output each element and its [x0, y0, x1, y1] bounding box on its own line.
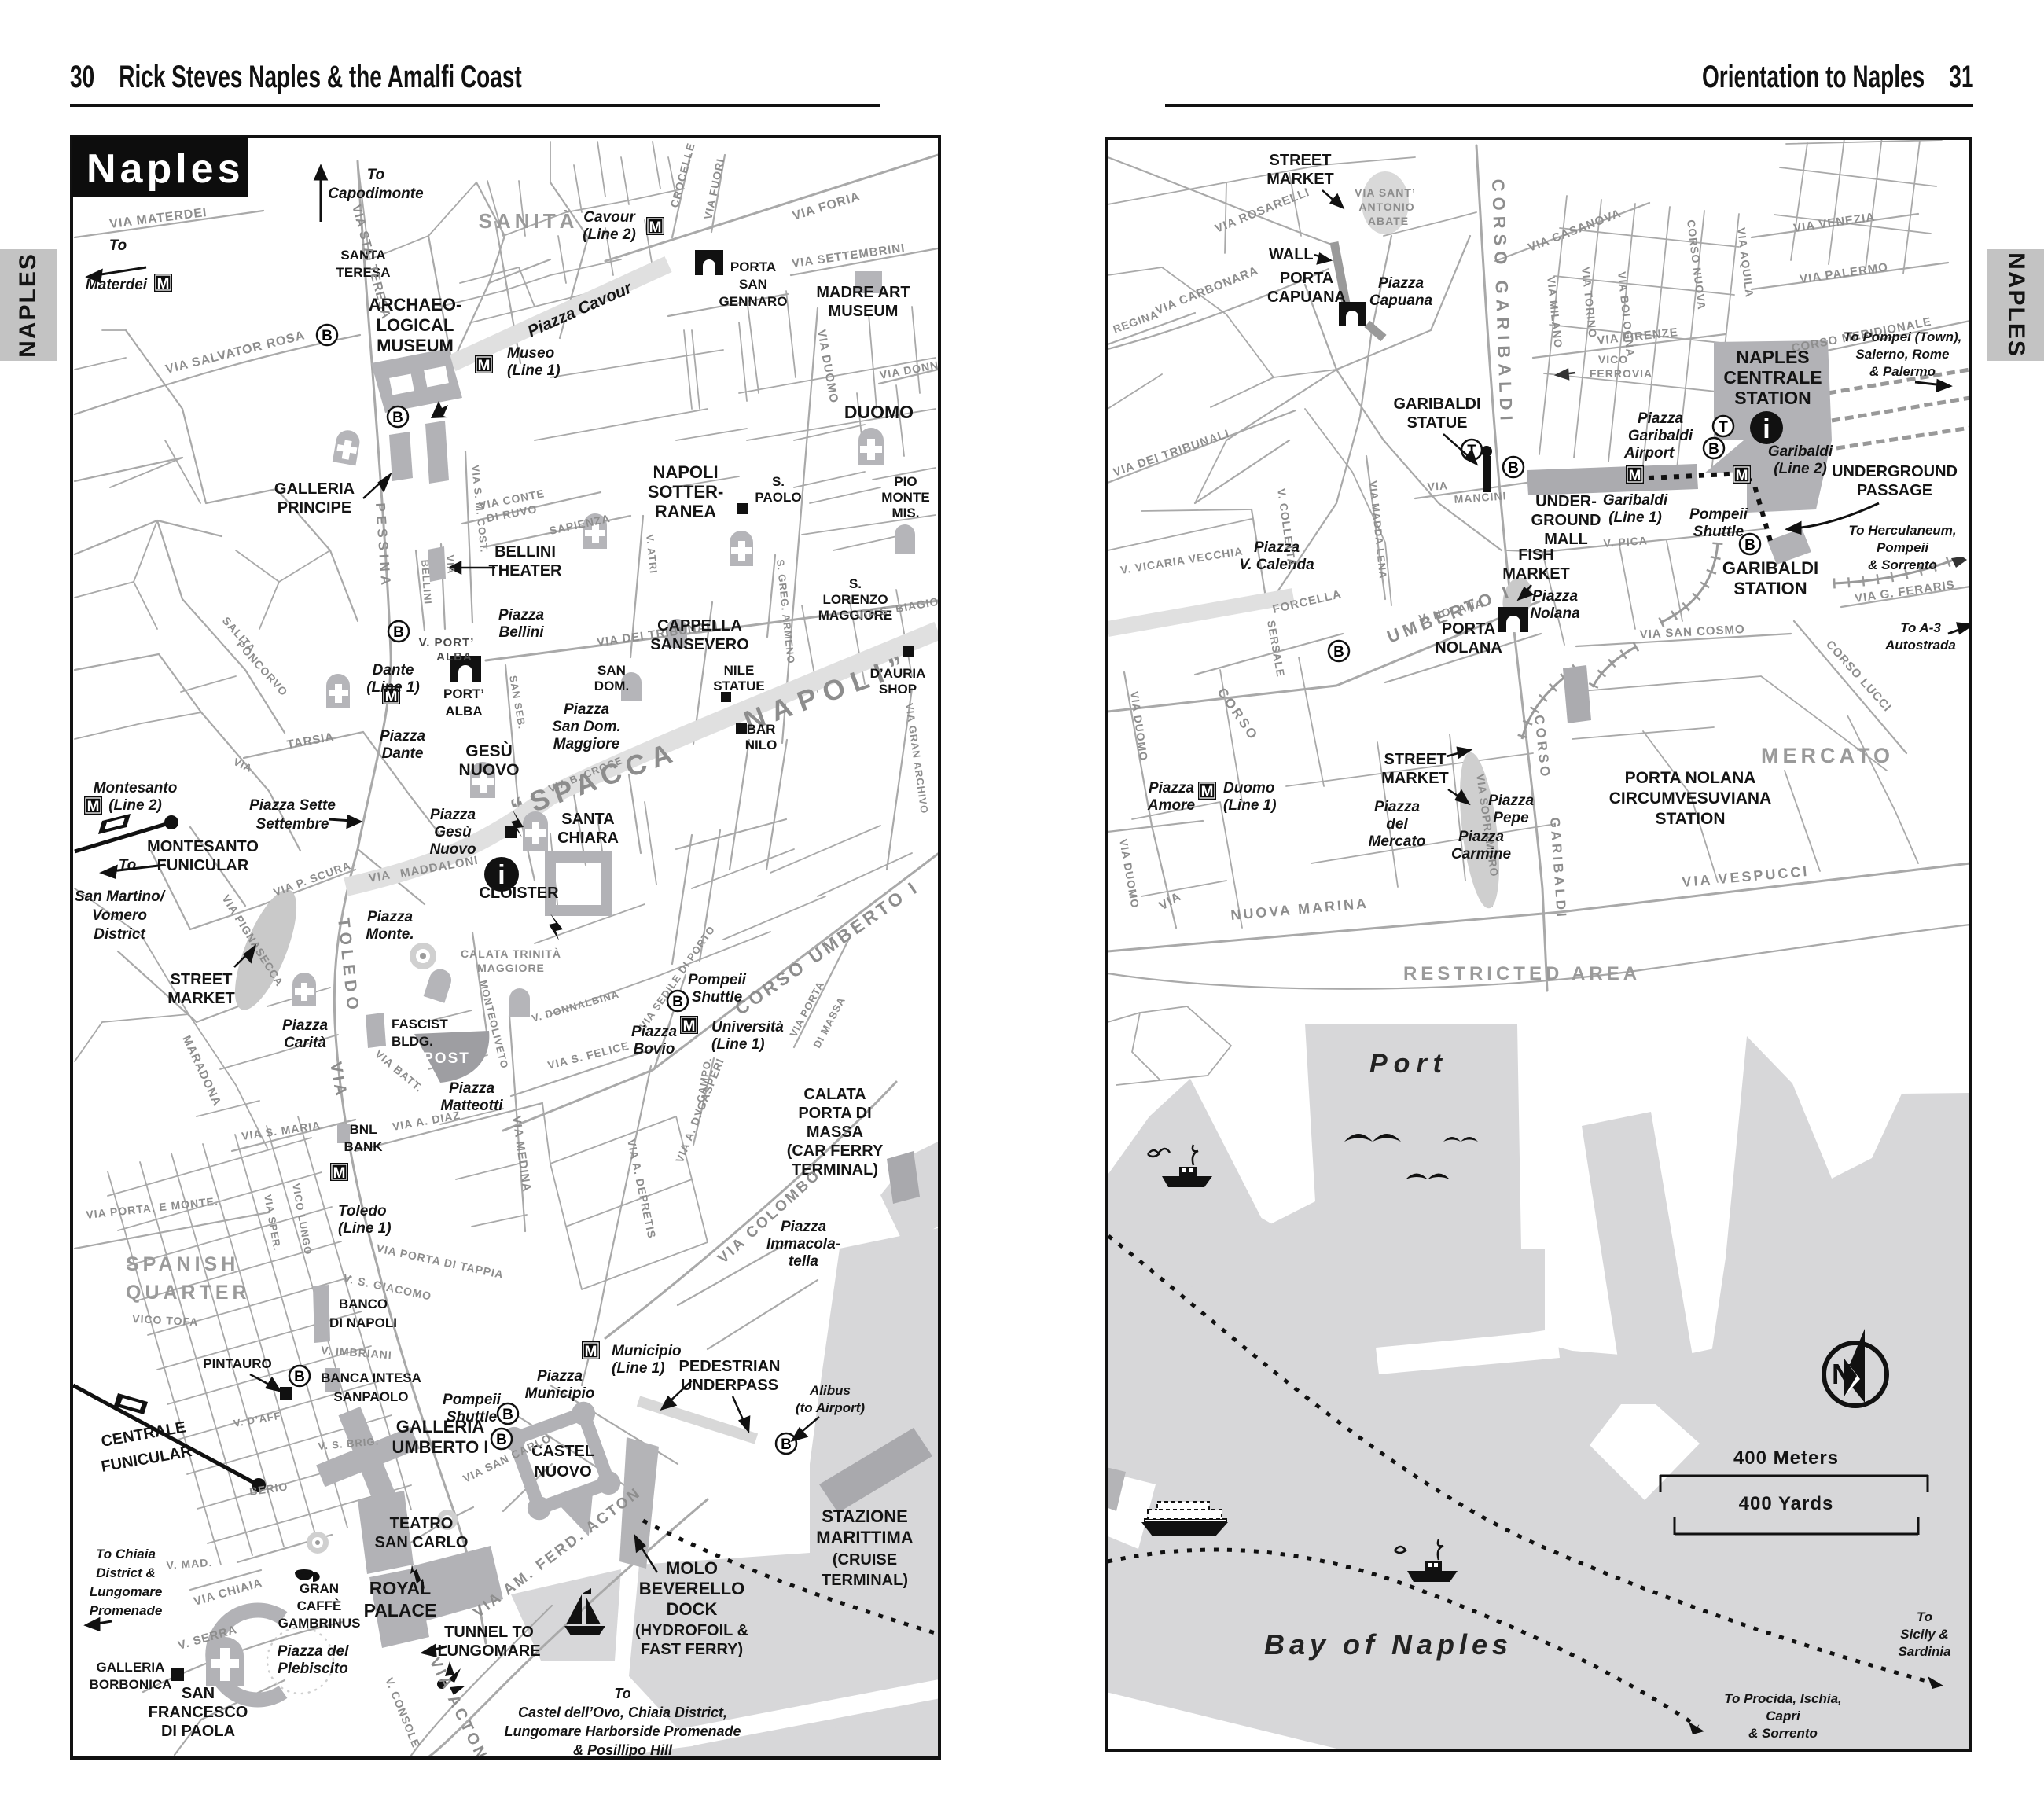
svg-text:GENNARO: GENNARO	[719, 294, 788, 309]
svg-text:FERROVIA: FERROVIA	[1590, 367, 1652, 380]
svg-text:GARIBALDI: GARIBALDI	[1547, 817, 1569, 920]
svg-text:Salerno, Rome: Salerno, Rome	[1855, 347, 1949, 362]
svg-text:STATUE: STATUE	[1406, 414, 1467, 432]
svg-text:CALATA: CALATA	[803, 1086, 866, 1103]
svg-text:CORSO LUCCI: CORSO LUCCI	[1823, 638, 1894, 715]
svg-text:& Sorrento: & Sorrento	[1748, 1726, 1818, 1741]
svg-text:B: B	[392, 410, 403, 426]
svg-text:PORTA: PORTA	[730, 259, 776, 274]
svg-text:VIA GRAN ARCHIVO: VIA GRAN ARCHIVO	[903, 702, 931, 815]
svg-text:Piazza: Piazza	[1458, 829, 1505, 845]
svg-text:TOLEDO: TOLEDO	[334, 917, 362, 1015]
svg-text:Bay of Naples: Bay of Naples	[1264, 1628, 1513, 1661]
svg-text:PEDESTRIAN: PEDESTRIAN	[679, 1358, 781, 1375]
svg-text:TARSIA: TARSIA	[286, 730, 336, 752]
svg-text:M: M	[478, 358, 491, 374]
svg-text:To: To	[367, 167, 385, 183]
svg-text:ARCHAEO-: ARCHAEO-	[369, 295, 462, 314]
svg-text:CAPPELLA: CAPPELLA	[657, 617, 742, 634]
svg-text:VIA: VIA	[444, 554, 458, 575]
svg-text:Pepe: Pepe	[1493, 810, 1529, 826]
svg-text:REGINA: REGINA	[1112, 307, 1160, 336]
svg-text:SHOP: SHOP	[879, 682, 917, 697]
svg-text:PESSINA: PESSINA	[373, 502, 394, 590]
svg-text:FAST FERRY): FAST FERRY)	[641, 1641, 743, 1658]
svg-text:Castel dell’Ovo, Chiaia Distri: Castel dell’Ovo, Chiaia District,	[518, 1705, 727, 1720]
svg-text:MARKET: MARKET	[1266, 171, 1334, 188]
svg-text:THEATER: THEATER	[489, 562, 563, 579]
svg-text:MAGGIORE: MAGGIORE	[477, 962, 545, 974]
svg-text:GRAN: GRAN	[300, 1581, 339, 1596]
svg-text:B: B	[322, 328, 333, 344]
svg-text:MOLO: MOLO	[666, 1558, 718, 1578]
svg-text:ROYAL: ROYAL	[369, 1578, 431, 1598]
svg-text:Dante: Dante	[382, 745, 424, 762]
svg-text:Capri: Capri	[1766, 1708, 1801, 1723]
svg-text:Maggiore: Maggiore	[553, 736, 620, 752]
svg-text:Piazza: Piazza	[1638, 410, 1684, 427]
svg-text:(Line 1): (Line 1)	[338, 1220, 392, 1237]
svg-text:GAMBRINUS: GAMBRINUS	[278, 1616, 361, 1631]
svg-text:Piazza: Piazza	[1488, 793, 1535, 809]
svg-text:B: B	[502, 1407, 513, 1423]
svg-text:GALLERIA: GALLERIA	[97, 1660, 165, 1675]
svg-text:VIA S. FELICE: VIA S. FELICE	[546, 1039, 630, 1072]
svg-text:Pompeii: Pompeii	[1877, 540, 1929, 555]
svg-text:Toledo: Toledo	[338, 1203, 387, 1219]
svg-text:VIA DUOMO: VIA DUOMO	[1128, 690, 1150, 762]
svg-text:VIA PALERMO: VIA PALERMO	[1799, 260, 1889, 286]
svg-text:To A-3: To A-3	[1900, 620, 1941, 635]
svg-text:MARKET: MARKET	[1381, 770, 1449, 787]
svg-text:VIA PORTA. E MONTE.: VIA PORTA. E MONTE.	[86, 1194, 219, 1221]
svg-text:Garibaldi: Garibaldi	[1768, 443, 1833, 460]
svg-text:STATION: STATION	[1734, 388, 1811, 408]
svg-text:MANCINI: MANCINI	[1454, 489, 1507, 506]
svg-text:GESÙ: GESÙ	[465, 741, 513, 760]
svg-text:B: B	[496, 1432, 507, 1448]
svg-text:SANSEVERO: SANSEVERO	[650, 636, 749, 653]
svg-text:SANPAOLO: SANPAOLO	[333, 1389, 408, 1404]
svg-text:Shuttle: Shuttle	[1693, 524, 1744, 540]
svg-text:Mercato: Mercato	[1369, 833, 1426, 850]
svg-text:Piazza Cavour: Piazza Cavour	[525, 278, 636, 341]
svg-text:Piazza: Piazza	[1149, 780, 1195, 796]
svg-text:UNDER-: UNDER-	[1535, 493, 1597, 510]
svg-text:NAPLES: NAPLES	[1736, 347, 1809, 367]
svg-text:MONTE: MONTE	[881, 490, 929, 505]
svg-text:BANCO: BANCO	[339, 1297, 388, 1311]
svg-text:MALL: MALL	[1544, 531, 1588, 548]
svg-text:PAOLO: PAOLO	[755, 490, 801, 505]
svg-text:MIS.: MIS.	[892, 506, 920, 520]
svg-text:Piazza: Piazza	[367, 909, 414, 925]
svg-text:SAN: SAN	[739, 277, 767, 292]
svg-text:CORSO UMBERTO I: CORSO UMBERTO I	[731, 877, 923, 1020]
svg-text:PASSAGE: PASSAGE	[1857, 482, 1932, 499]
svg-text:(Line 2): (Line 2)	[108, 797, 162, 814]
svg-text:STATION: STATION	[1655, 810, 1725, 828]
svg-text:Immacola-: Immacola-	[766, 1236, 840, 1252]
svg-text:MARADONA: MARADONA	[179, 1034, 223, 1109]
svg-text:VIA BATT.: VIA BATT.	[373, 1047, 425, 1094]
svg-text:VIA SANT’: VIA SANT’	[1355, 186, 1416, 199]
svg-text:RESTRICTED AREA: RESTRICTED AREA	[1403, 963, 1641, 984]
svg-text:& Palermo: & Palermo	[1869, 364, 1936, 379]
svg-text:VIA VESPUCCI: VIA VESPUCCI	[1682, 863, 1811, 890]
svg-text:TEATRO: TEATRO	[390, 1515, 454, 1532]
svg-text:Capodimonte: Capodimonte	[328, 186, 424, 202]
svg-text:UNDERGROUND: UNDERGROUND	[1832, 463, 1958, 480]
svg-text:To: To	[119, 857, 137, 874]
svg-text:VIA SETTEMBRINI: VIA SETTEMBRINI	[791, 241, 906, 270]
svg-text:QUARTER: QUARTER	[126, 1282, 251, 1304]
svg-text:District: District	[94, 926, 145, 943]
svg-text:V. PICA: V. PICA	[1603, 534, 1648, 550]
svg-text:400 Yards: 400 Yards	[1739, 1493, 1834, 1514]
svg-text:M: M	[585, 1344, 597, 1360]
svg-text:tella: tella	[789, 1253, 818, 1270]
svg-text:NUOVO: NUOVO	[458, 761, 519, 779]
svg-text:CALATA TRINITÀ: CALATA TRINITÀ	[461, 947, 561, 960]
svg-text:BEVERELLO: BEVERELLO	[639, 1579, 744, 1598]
svg-text:VIA: VIA	[1427, 479, 1448, 493]
svg-text:Piazza: Piazza	[449, 1080, 495, 1097]
svg-text:V. PORT’: V. PORT’	[419, 636, 475, 649]
svg-text:VIA DUOMO: VIA DUOMO	[1117, 838, 1141, 910]
svg-text:M: M	[1629, 468, 1641, 484]
svg-text:BORBONICA: BORBONICA	[90, 1677, 172, 1692]
svg-text:Piazza: Piazza	[282, 1017, 329, 1034]
svg-text:Bovio: Bovio	[634, 1041, 675, 1057]
svg-text:DI NAPOLI: DI NAPOLI	[329, 1315, 397, 1330]
svg-text:MARKET: MARKET	[1502, 565, 1570, 583]
svg-text:PRINCIPE: PRINCIPE	[278, 499, 351, 517]
svg-text:UNDERPASS: UNDERPASS	[681, 1377, 778, 1394]
svg-text:B: B	[672, 994, 683, 1010]
svg-text:Airport: Airport	[1623, 445, 1675, 462]
svg-text:Vomero: Vomero	[92, 907, 147, 924]
svg-text:VIA FORIA: VIA FORIA	[791, 189, 862, 223]
svg-text:NILE: NILE	[724, 663, 755, 678]
svg-text:ABATE: ABATE	[1368, 215, 1409, 227]
svg-text:Dante: Dante	[373, 662, 414, 679]
svg-text:VIA MILANO: VIA MILANO	[1545, 276, 1565, 349]
svg-text:STREET: STREET	[1270, 152, 1332, 169]
svg-text:VIA A. DEPRETIS: VIA A. DEPRETIS	[625, 1138, 658, 1240]
svg-text:NAPOLI: NAPOLI	[653, 462, 718, 482]
svg-text:(CAR FERRY: (CAR FERRY	[787, 1142, 884, 1160]
svg-text:B: B	[1333, 644, 1344, 660]
svg-text:SERSALE: SERSALE	[1265, 620, 1287, 679]
svg-text:Municipio: Municipio	[525, 1385, 595, 1402]
svg-text:NILO: NILO	[745, 737, 778, 752]
svg-text:San Martino/: San Martino/	[75, 888, 166, 905]
svg-text:NUOVO: NUOVO	[534, 1463, 591, 1480]
svg-text:M: M	[333, 1165, 346, 1182]
svg-text:BAR: BAR	[747, 722, 776, 737]
svg-text:(Line 1): (Line 1)	[507, 362, 561, 379]
svg-text:& Posillipo Hill: & Posillipo Hill	[573, 1742, 673, 1758]
svg-text:VICO TOFA: VICO TOFA	[132, 1312, 199, 1328]
svg-text:Piazza: Piazza	[537, 1368, 583, 1385]
svg-text:(Line 1): (Line 1)	[366, 679, 420, 696]
svg-text:VIA CASANOVA: VIA CASANOVA	[1526, 207, 1623, 255]
svg-text:CLOISTER: CLOISTER	[479, 885, 559, 902]
svg-text:(to Airport): (to Airport)	[796, 1400, 865, 1415]
svg-text:V. CONSOLE: V. CONSOLE	[383, 1675, 422, 1749]
svg-text:Lungomare Harborside Promenade: Lungomare Harborside Promenade	[504, 1723, 741, 1739]
svg-text:Garibaldi: Garibaldi	[1603, 492, 1668, 509]
svg-text:DUOMO: DUOMO	[844, 402, 914, 422]
svg-text:Capuana: Capuana	[1369, 292, 1433, 309]
svg-text:V. MAD.: V. MAD.	[166, 1556, 213, 1572]
svg-text:PALACE: PALACE	[364, 1600, 437, 1620]
svg-text:To Pompei (Town),: To Pompei (Town),	[1844, 329, 1962, 344]
svg-text:Università: Università	[711, 1019, 784, 1035]
svg-text:To: To	[1917, 1609, 1932, 1624]
svg-text:S.: S.	[849, 576, 862, 591]
svg-text:CENTRALE: CENTRALE	[1723, 367, 1822, 388]
svg-text:(Line 1): (Line 1)	[711, 1036, 765, 1053]
svg-text:VIA MADDA LENA: VIA MADDA LENA	[1367, 480, 1389, 580]
svg-text:VIA MEDINA: VIA MEDINA	[509, 1115, 533, 1193]
svg-text:WALL: WALL	[1269, 246, 1314, 263]
svg-text:M: M	[87, 799, 100, 815]
svg-text:San Dom.: San Dom.	[552, 719, 621, 735]
svg-text:(HYDROFOIL &: (HYDROFOIL &	[635, 1622, 748, 1639]
svg-text:Piazza: Piazza	[564, 701, 610, 718]
svg-text:BLDG.: BLDG.	[392, 1034, 433, 1049]
svg-text:PONCORVO: PONCORVO	[234, 638, 291, 698]
svg-text:BELLINI: BELLINI	[494, 543, 556, 561]
svg-text:Alibus: Alibus	[809, 1383, 851, 1398]
svg-text:Settembre: Settembre	[256, 816, 329, 833]
svg-text:LUNGOMARE: LUNGOMARE	[437, 1642, 540, 1660]
svg-text:Plebiscito: Plebiscito	[278, 1661, 348, 1677]
svg-text:M: M	[1736, 468, 1748, 484]
svg-text:STREET: STREET	[171, 971, 233, 988]
svg-text:V. VICARIA VECCHIA: V. VICARIA VECCHIA	[1119, 544, 1244, 576]
svg-text:MONTESANTO: MONTESANTO	[147, 838, 259, 855]
svg-text:VIA: VIA	[326, 1061, 351, 1100]
svg-text:PINTAURO: PINTAURO	[203, 1356, 272, 1371]
svg-text:Piazza: Piazza	[631, 1024, 678, 1040]
svg-text:T: T	[1719, 419, 1728, 436]
svg-text:Garibaldi: Garibaldi	[1628, 428, 1693, 444]
svg-text:Montesanto: Montesanto	[94, 780, 178, 796]
svg-text:Piazza del: Piazza del	[278, 1643, 350, 1660]
svg-text:DOCK: DOCK	[667, 1599, 718, 1619]
svg-text:SANTA: SANTA	[561, 811, 614, 828]
svg-text:Piazza: Piazza	[781, 1219, 827, 1235]
svg-text:FISH: FISH	[1518, 546, 1554, 564]
svg-text:FRANCESCO: FRANCESCO	[149, 1704, 248, 1721]
svg-text:BANCA INTESA: BANCA INTESA	[321, 1370, 421, 1385]
svg-text:B: B	[781, 1436, 792, 1453]
svg-text:Lungomare: Lungomare	[90, 1584, 163, 1599]
svg-text:M: M	[157, 276, 170, 292]
svg-text:S.: S.	[772, 474, 785, 489]
svg-text:VIA DEI TRIBUNALI: VIA DEI TRIBUNALI	[1112, 427, 1232, 480]
svg-text:Municipio: Municipio	[612, 1343, 682, 1359]
svg-text:Promenade: Promenade	[90, 1603, 163, 1618]
svg-text:POST: POST	[423, 1050, 470, 1067]
svg-text:M: M	[683, 1018, 696, 1035]
svg-text:VIA DUOMO: VIA DUOMO	[814, 329, 840, 405]
svg-text:CIRCUMVESUVIANA: CIRCUMVESUVIANA	[1609, 789, 1772, 807]
svg-text:Bellini: Bellini	[498, 624, 544, 641]
svg-text:BANK: BANK	[344, 1139, 383, 1154]
svg-text:MARITTIMA: MARITTIMA	[816, 1528, 914, 1547]
svg-text:VIA FUORI: VIA FUORI	[701, 157, 726, 221]
svg-text:Shuttle: Shuttle	[692, 989, 743, 1006]
svg-text:To: To	[614, 1686, 630, 1701]
svg-text:LOGICAL: LOGICAL	[377, 315, 454, 335]
svg-text:Piazza: Piazza	[380, 728, 426, 745]
svg-text:(Line 1): (Line 1)	[1608, 509, 1662, 526]
svg-text:B: B	[294, 1369, 305, 1385]
svg-text:Pompeii: Pompeii	[443, 1392, 502, 1408]
svg-text:GALLERIA: GALLERIA	[274, 480, 355, 498]
svg-text:Nolana: Nolana	[1530, 605, 1580, 622]
svg-text:TERMINAL): TERMINAL)	[822, 1572, 908, 1589]
svg-text:VIA PORTA DI TAPPIA: VIA PORTA DI TAPPIA	[375, 1241, 505, 1281]
svg-text:DOM.: DOM.	[594, 679, 629, 693]
svg-text:PORTA DI: PORTA DI	[798, 1105, 871, 1122]
svg-text:VIA CARBONARA: VIA CARBONARA	[1153, 264, 1260, 318]
svg-text:Duomo: Duomo	[1223, 780, 1274, 796]
svg-text:VIA A. DIAZ: VIA A. DIAZ	[392, 1109, 461, 1133]
svg-text:FASCIST: FASCIST	[392, 1017, 448, 1032]
svg-text:Materdei: Materdei	[86, 277, 148, 293]
svg-text:To Procida, Ischia,: To Procida, Ischia,	[1724, 1691, 1842, 1706]
svg-text:Piazza: Piazza	[498, 607, 545, 623]
svg-text:CAPUANA: CAPUANA	[1267, 289, 1346, 306]
svg-text:Piazza: Piazza	[1532, 588, 1579, 605]
svg-text:STATUE: STATUE	[713, 679, 764, 693]
svg-text:MADRE ART: MADRE ART	[816, 284, 910, 301]
svg-text:SAN: SAN	[182, 1685, 215, 1702]
svg-text:SOTTER-: SOTTER-	[648, 482, 724, 502]
svg-text:VIA MATERDEI: VIA MATERDEI	[108, 206, 208, 231]
svg-text:MUSEUM: MUSEUM	[377, 336, 454, 355]
svg-text:400 Meters: 400 Meters	[1733, 1447, 1839, 1469]
svg-text:Monte.: Monte.	[366, 926, 414, 943]
svg-text:PORTA: PORTA	[1442, 620, 1496, 638]
svg-text:M: M	[649, 219, 662, 236]
svg-text:GALLERIA: GALLERIA	[396, 1417, 485, 1436]
svg-text:VIA DONNA-: VIA DONNA-	[879, 356, 941, 381]
svg-text:& Sorrento: & Sorrento	[1868, 557, 1937, 572]
svg-text:ALBA: ALBA	[445, 704, 482, 719]
svg-text:Piazza Sette: Piazza Sette	[249, 797, 336, 814]
svg-text:del: del	[1386, 816, 1408, 833]
svg-text:Pompeii: Pompeii	[1689, 506, 1748, 523]
svg-text:MERCATO: MERCATO	[1761, 744, 1894, 767]
svg-text:Piazza: Piazza	[430, 807, 476, 823]
svg-text:(CRUISE: (CRUISE	[833, 1551, 897, 1569]
svg-text:V. DONNALBINA: V. DONNALBINA	[531, 988, 621, 1024]
svg-text:B: B	[1708, 441, 1719, 458]
svg-text:Piazza: Piazza	[1374, 799, 1421, 815]
svg-text:CHIARA: CHIARA	[557, 829, 619, 847]
svg-text:B: B	[1744, 537, 1755, 554]
svg-text:MARKET: MARKET	[167, 990, 235, 1007]
svg-text:(Line 2): (Line 2)	[583, 226, 636, 243]
svg-text:(Line 1): (Line 1)	[1223, 797, 1277, 814]
svg-text:Naples: Naples	[86, 146, 244, 192]
svg-text:STAZIONE: STAZIONE	[822, 1506, 908, 1526]
svg-text:VICO: VICO	[1598, 353, 1628, 366]
svg-text:ANTONIO: ANTONIO	[1358, 200, 1414, 213]
svg-text:BNL: BNL	[350, 1122, 377, 1137]
svg-text:Piazza: Piazza	[1378, 275, 1425, 292]
svg-text:D’AURIA: D’AURIA	[870, 666, 926, 681]
svg-text:GARIBALDI: GARIBALDI	[1722, 558, 1818, 578]
svg-text:(Line 1): (Line 1)	[612, 1360, 665, 1377]
svg-text:VIA SPER.: VIA SPER.	[262, 1194, 283, 1252]
svg-text:Gesù: Gesù	[434, 824, 472, 840]
svg-text:Autostrada: Autostrada	[1884, 638, 1956, 653]
svg-text:NOLANA: NOLANA	[1435, 639, 1502, 657]
svg-text:STATION: STATION	[1733, 579, 1807, 598]
svg-text:GROUND: GROUND	[1531, 512, 1601, 529]
svg-text:PIO: PIO	[894, 474, 917, 489]
svg-text:To Herculaneum,: To Herculaneum,	[1848, 523, 1956, 538]
svg-text:NUOVA MARINA: NUOVA MARINA	[1230, 896, 1369, 923]
svg-text:VIA SALVATOR ROSA: VIA SALVATOR ROSA	[164, 329, 307, 377]
svg-text:DI PAOLA: DI PAOLA	[161, 1723, 235, 1740]
svg-text:FUNICULAR: FUNICULAR	[157, 857, 249, 874]
svg-text:(Line 2): (Line 2)	[1774, 461, 1827, 477]
svg-text:STREET: STREET	[1384, 751, 1447, 768]
svg-text:Cavour: Cavour	[583, 209, 636, 226]
svg-text:Carità: Carità	[284, 1035, 326, 1051]
svg-text:MASSA: MASSA	[807, 1124, 863, 1141]
svg-text:VIA P. SCURA: VIA P. SCURA	[272, 859, 353, 899]
svg-text:B: B	[393, 624, 404, 641]
svg-text:VIA: VIA	[232, 756, 255, 774]
svg-text:TUNNEL TO: TUNNEL TO	[444, 1624, 534, 1641]
svg-text:Port: Port	[1369, 1049, 1448, 1079]
svg-text:CAFFÈ: CAFFÈ	[297, 1598, 342, 1613]
svg-text:VIA G. FERARIS: VIA G. FERARIS	[1854, 578, 1956, 605]
svg-text:Amore: Amore	[1147, 797, 1196, 814]
svg-text:VIA SAN COSMO: VIA SAN COSMO	[1639, 623, 1745, 642]
svg-text:PORTA: PORTA	[1280, 270, 1334, 287]
svg-text:Sicily &: Sicily &	[1900, 1627, 1948, 1642]
svg-text:GARIBALDI: GARIBALDI	[1393, 395, 1480, 413]
svg-text:V. Calenda: V. Calenda	[1239, 557, 1314, 573]
svg-text:V. IMBRIANI: V. IMBRIANI	[321, 1344, 393, 1361]
svg-text:To: To	[109, 237, 127, 254]
svg-text:N: N	[1832, 1358, 1852, 1390]
svg-text:To Chiaia: To Chiaia	[96, 1547, 156, 1561]
svg-text:MUSEUM: MUSEUM	[829, 303, 899, 320]
svg-text:SAN: SAN	[597, 663, 626, 678]
svg-text:V. D’AFF.: V. D’AFF.	[233, 1409, 285, 1429]
svg-text:RANEA: RANEA	[655, 502, 716, 521]
svg-text:Museo: Museo	[507, 345, 554, 362]
svg-text:Pompeii: Pompeii	[688, 972, 747, 988]
svg-text:SPANISH: SPANISH	[126, 1253, 239, 1275]
svg-text:M: M	[1201, 784, 1214, 800]
svg-text:CORSO: CORSO	[1531, 714, 1553, 780]
svg-text:PORT’: PORT’	[443, 686, 484, 701]
svg-text:B: B	[1508, 460, 1519, 476]
svg-text:UMBERTO I: UMBERTO I	[392, 1437, 488, 1457]
